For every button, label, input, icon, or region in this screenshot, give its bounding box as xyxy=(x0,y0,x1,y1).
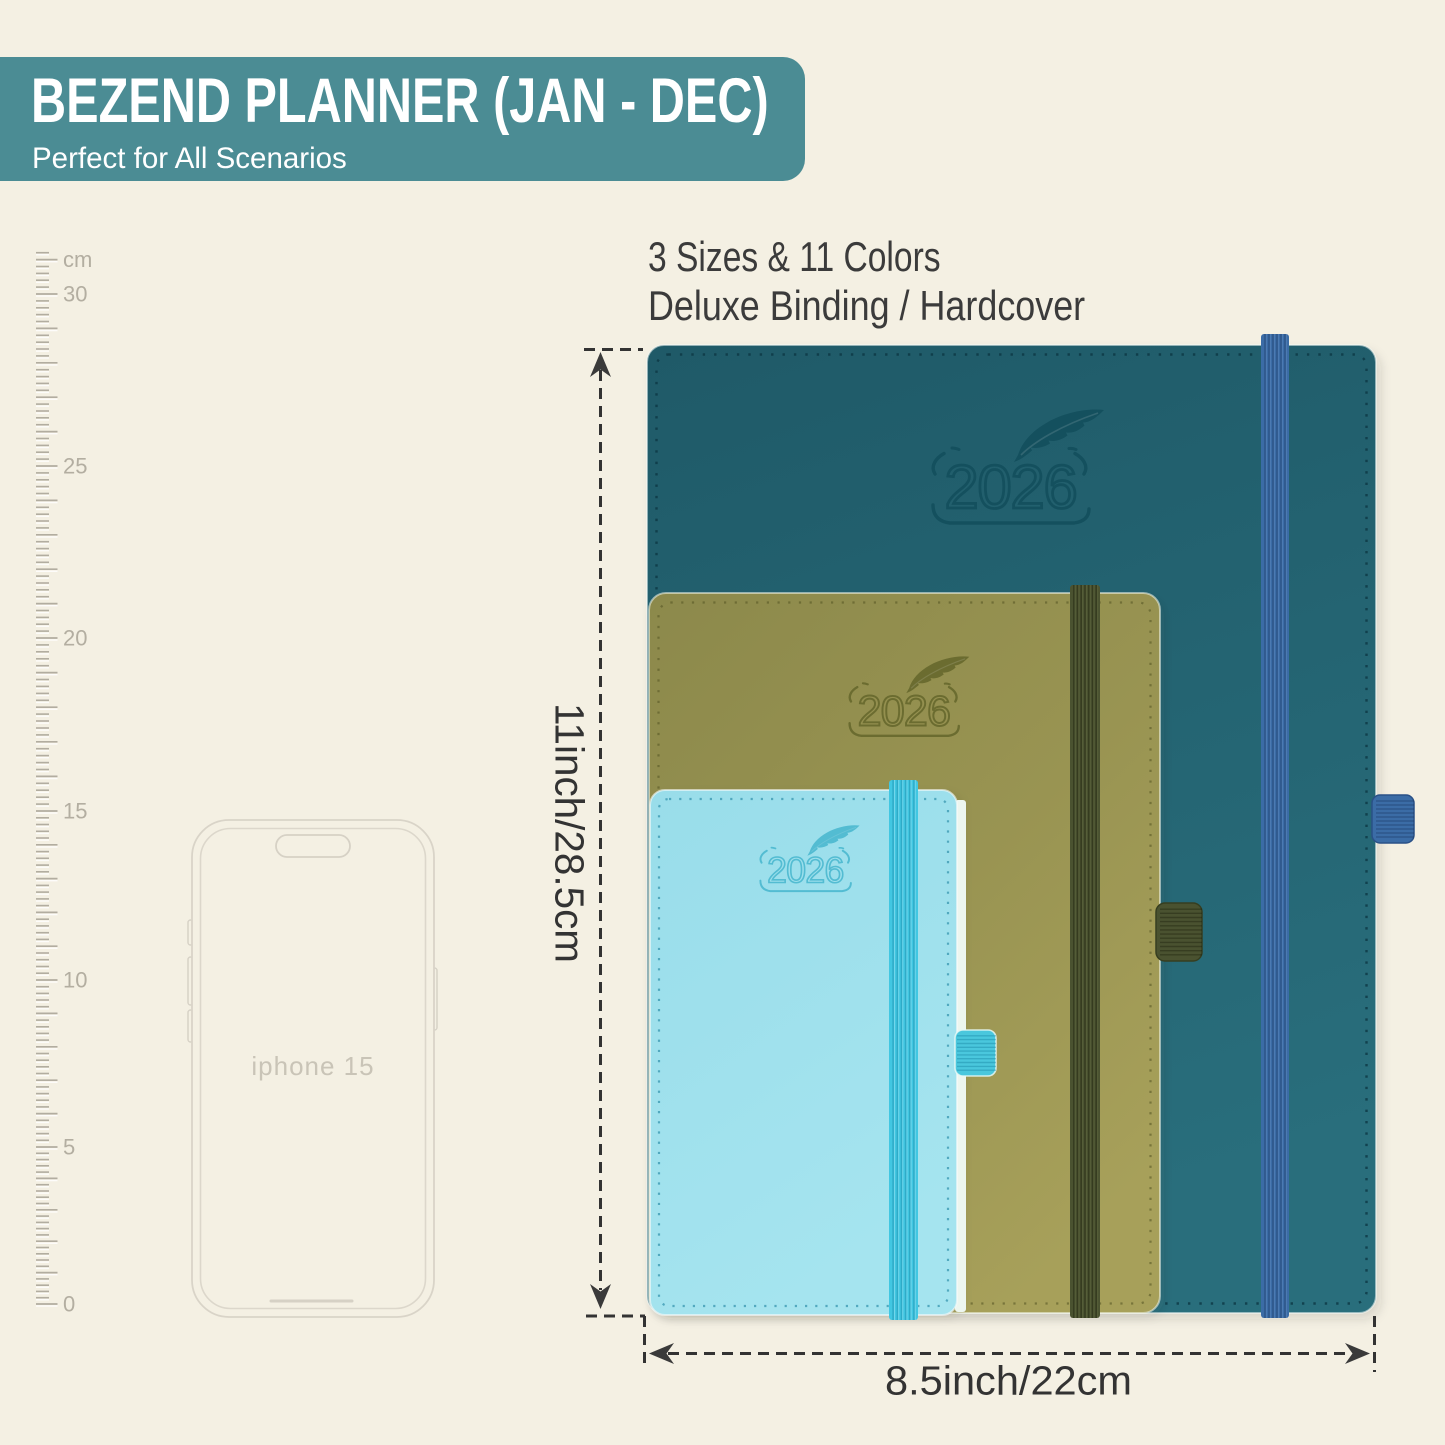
svg-text:10: 10 xyxy=(63,968,87,993)
svg-text:11inch/28.5cm: 11inch/28.5cm xyxy=(547,703,593,963)
svg-text:5: 5 xyxy=(63,1135,75,1160)
svg-text:25: 25 xyxy=(63,454,87,479)
svg-text:cm: cm xyxy=(63,247,92,272)
svg-text:15: 15 xyxy=(63,799,87,824)
svg-text:iphone 15: iphone 15 xyxy=(251,1051,374,1081)
svg-text:8.5inch/22cm: 8.5inch/22cm xyxy=(885,1358,1132,1404)
svg-text:0: 0 xyxy=(63,1292,75,1317)
svg-text:20: 20 xyxy=(63,626,87,651)
svg-text:30: 30 xyxy=(63,282,87,307)
